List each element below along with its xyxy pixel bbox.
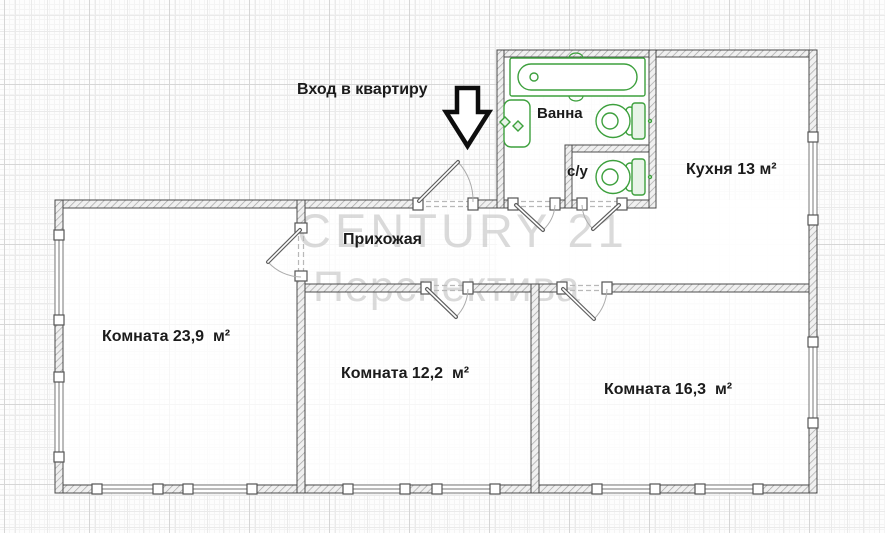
doors xyxy=(268,162,627,319)
room-2-label: Комната 12,2 м² xyxy=(341,365,469,383)
floor-plan: CENTURY 21 Перспектива xyxy=(0,0,885,533)
toilet-icon-wc xyxy=(596,159,652,195)
room-3-label: Комната 16,3 м² xyxy=(604,381,732,399)
wc-label: с/у xyxy=(567,164,588,181)
bathroom-label: Ванна xyxy=(537,106,583,123)
room-1-label: Комната 23,9 м² xyxy=(102,328,230,346)
walls xyxy=(55,50,817,493)
entrance-arrow-icon xyxy=(446,88,489,146)
toilet-icon xyxy=(596,103,652,139)
bathtub-icon xyxy=(510,53,645,101)
entrance-label: Вход в квартиру xyxy=(297,81,428,99)
kitchen-label: Кухня 13 м² xyxy=(686,161,777,179)
sink-icon xyxy=(500,100,530,147)
hallway-label: Прихожая xyxy=(343,231,422,249)
floor-plan-drawing xyxy=(0,0,885,533)
